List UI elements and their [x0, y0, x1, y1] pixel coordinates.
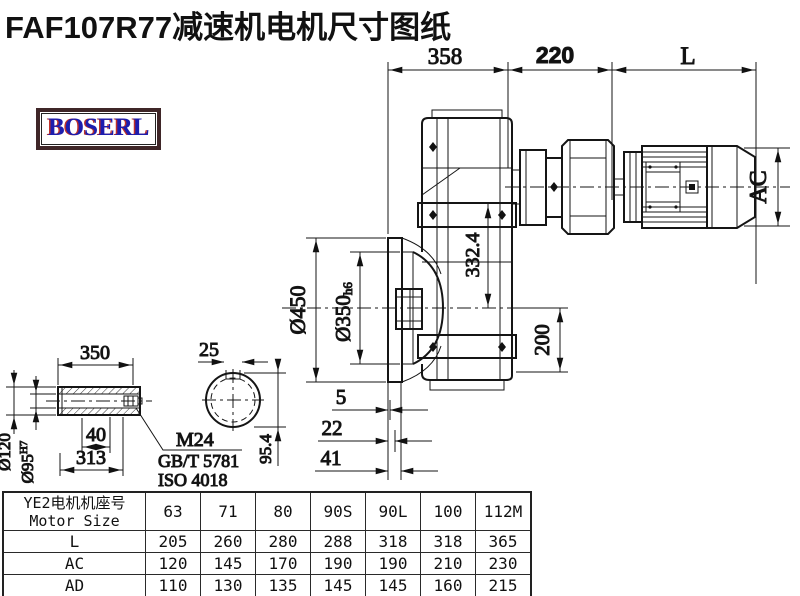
table-row-AD: AD 110 130 135 145 145 160 215	[3, 575, 531, 596]
dim-gear-width: 358	[428, 44, 463, 69]
motor-size-col: 90S	[311, 492, 366, 531]
table-cell: 288	[311, 531, 366, 553]
dim-motor-diameter: AC	[746, 170, 772, 203]
table-cell: 145	[366, 575, 421, 596]
dim-key-width: 25	[199, 339, 219, 361]
table-cell: 280	[256, 531, 311, 553]
table-cell: 190	[311, 553, 366, 575]
dim-bore-length: 313	[76, 447, 106, 469]
dim-adapter-width: 220	[536, 42, 574, 68]
dim-bolt-depth: 40	[86, 424, 106, 446]
page: FAF107R77减速机电机尺寸图纸 BOSERL	[0, 0, 800, 596]
table-row-L: L 205 260 280 288 318 318 365	[3, 531, 531, 553]
output-flange	[388, 238, 443, 382]
dim-spigot-diameter: Ø350h6	[331, 282, 355, 342]
dim-flange-step-3: 41	[321, 446, 342, 470]
table-cell: 135	[256, 575, 311, 596]
table-cell: 318	[366, 531, 421, 553]
table-cell: 120	[146, 553, 201, 575]
table-header-cn: YE2电机机座号	[4, 494, 145, 512]
table-header-row: YE2电机机座号 Motor Size 63 71 80 90S 90L 100…	[3, 492, 531, 531]
table-cell: 145	[311, 575, 366, 596]
dim-shaft-od: Ø120	[0, 433, 14, 471]
dim-shaft-length: 350	[80, 342, 110, 364]
dim-key-height: 95.4	[256, 434, 275, 464]
bolt-label: M24	[176, 429, 214, 451]
bolt-standard-2: ISO 4018	[158, 470, 228, 490]
dimension-shaft-height: 332.4	[462, 203, 488, 308]
dimension-base-height: 200	[516, 308, 568, 372]
bolt-standard-1: GB/T 5781	[158, 451, 239, 471]
table-cell: 145	[201, 553, 256, 575]
dim-flange-step-1: 5	[336, 385, 347, 409]
table-cell: 260	[201, 531, 256, 553]
table-cell: 210	[421, 553, 476, 575]
table-cell: 160	[421, 575, 476, 596]
row-label: L	[3, 531, 146, 553]
dim-shaft-bore: Ø95H7	[18, 440, 37, 483]
table-cell: 190	[366, 553, 421, 575]
table-cell: 215	[476, 575, 532, 596]
motor-size-col: 80	[256, 492, 311, 531]
row-label: AD	[3, 575, 146, 596]
dim-motor-length: L	[680, 43, 695, 70]
table-header-label: YE2电机机座号 Motor Size	[3, 492, 146, 531]
hollow-shaft-detail: 350 40 313 Ø120	[0, 342, 242, 490]
table-row-AC: AC 120 145 170 190 190 210 230	[3, 553, 531, 575]
table-cell: 318	[421, 531, 476, 553]
dimension-flange-diameters: Ø450 Ø350h6	[285, 238, 400, 382]
table-cell: 110	[146, 575, 201, 596]
dim-base-height: 200	[530, 324, 554, 356]
row-label: AC	[3, 553, 146, 575]
table-cell: 170	[256, 553, 311, 575]
motor-size-col: 63	[146, 492, 201, 531]
dim-flange-diameter: Ø450	[285, 286, 310, 335]
dim-flange-step-2: 22	[322, 416, 343, 440]
table-header-en: Motor Size	[4, 512, 145, 530]
motor-size-col: 112M	[476, 492, 532, 531]
motor-size-col: 90L	[366, 492, 421, 531]
dimension-top-widths: 358 220 L	[388, 42, 756, 284]
dim-shaft-height: 332.4	[462, 233, 484, 278]
table-cell: 205	[146, 531, 201, 553]
table-cell: 130	[201, 575, 256, 596]
motor-size-col: 100	[421, 492, 476, 531]
table-cell: 230	[476, 553, 532, 575]
dimension-flange-steps: 5 22 41	[315, 383, 438, 480]
motor-size-table: YE2电机机座号 Motor Size 63 71 80 90S 90L 100…	[2, 491, 532, 596]
motor-size-col: 71	[201, 492, 256, 531]
table-cell: 365	[476, 531, 532, 553]
